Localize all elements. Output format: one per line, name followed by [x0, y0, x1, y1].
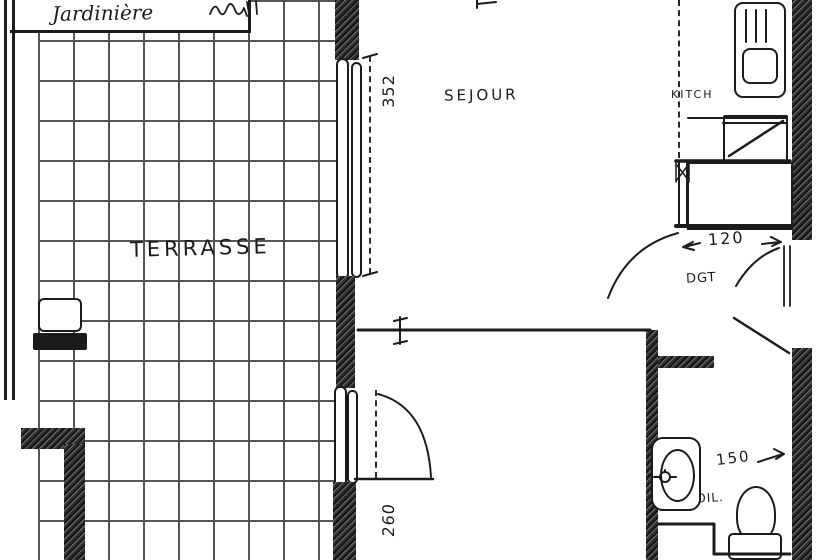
facade-wall-top — [335, 0, 359, 60]
hallway-label: DGT — [686, 270, 717, 287]
dim-120-arrow-right-icon — [762, 237, 781, 246]
window-352-inner-pane — [351, 62, 362, 278]
dim-120-arrow-left-icon — [683, 242, 700, 250]
entrance-door-arc — [736, 248, 779, 286]
right-wall-lower — [792, 348, 812, 560]
dim-120-label: 120 — [707, 228, 745, 250]
living-room-label: SEJOUR — [444, 85, 519, 104]
facade-wall-middle — [336, 276, 355, 388]
kitchen-sink-basin — [742, 48, 778, 84]
washbasin-bowl — [660, 449, 695, 502]
left-outer-wall-line-2 — [12, 0, 15, 400]
terrace-side-wall-bar — [33, 333, 87, 350]
terrace-label: TERRASSE — [130, 234, 271, 262]
dim-352-label: 352 — [379, 69, 401, 113]
entrance-door-leaf — [784, 246, 790, 306]
wc-tank — [728, 533, 782, 560]
closet-box — [687, 162, 793, 230]
dim-150-arrow-right-icon — [758, 449, 784, 462]
toilet-door-leaf — [734, 318, 789, 353]
planter-end-box — [38, 298, 82, 332]
facade-wall-bottom — [333, 482, 356, 560]
dim-352-line — [369, 56, 371, 274]
door-260-outer-pane — [334, 386, 347, 488]
kitchen-divider-dashed — [678, 0, 680, 158]
dim-150-label: 150 — [715, 447, 752, 469]
terrace-door-leaf — [375, 390, 377, 478]
lower-left-wall-vertical — [64, 444, 85, 560]
dim-260-label: 260 — [379, 497, 401, 543]
window-352-outer-pane — [336, 58, 349, 280]
wall-tick-mark — [394, 317, 407, 344]
hallway-door-arc — [608, 233, 678, 298]
terrace-door-arc — [378, 394, 431, 477]
kitchen-counter — [723, 115, 788, 162]
door-260-inner-pane — [347, 390, 358, 484]
right-wall-upper — [792, 0, 812, 240]
floor-plan-scan: Jardinière 352 260 TERRASSE SEJOUR KITCH… — [0, 0, 840, 560]
toilet-top-wall-stub — [658, 356, 714, 368]
top-edge-tick-mark — [477, 0, 496, 8]
planter-label: Jardinière — [52, 0, 154, 26]
left-outer-wall-line-1 — [4, 0, 7, 400]
closet-left-wall-lines — [679, 163, 687, 226]
